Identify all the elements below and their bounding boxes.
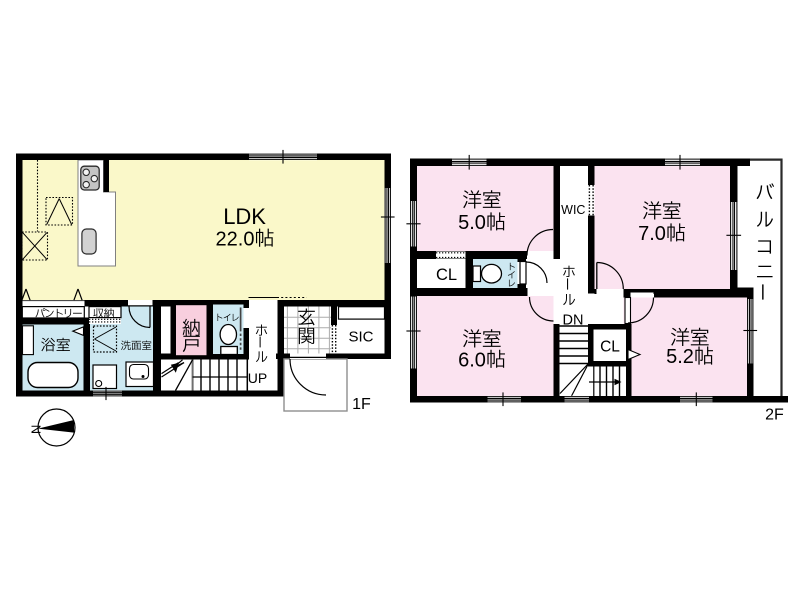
svg-text:6.0: 6.0: [458, 349, 486, 371]
svg-text:CL: CL: [600, 338, 620, 355]
svg-text:SIC: SIC: [348, 328, 373, 345]
svg-text:5.0: 5.0: [458, 212, 486, 234]
svg-text:N: N: [29, 425, 44, 434]
svg-text:UP: UP: [248, 370, 267, 386]
svg-text:1F: 1F: [352, 396, 371, 413]
svg-text:LDK: LDK: [223, 204, 266, 229]
svg-text:CL: CL: [436, 266, 457, 284]
svg-text:WIC: WIC: [561, 203, 585, 217]
svg-text:2F: 2F: [765, 406, 784, 423]
svg-text:22.0: 22.0: [216, 228, 255, 250]
svg-text:5.2: 5.2: [666, 346, 694, 368]
svg-text:7.0: 7.0: [638, 223, 666, 245]
